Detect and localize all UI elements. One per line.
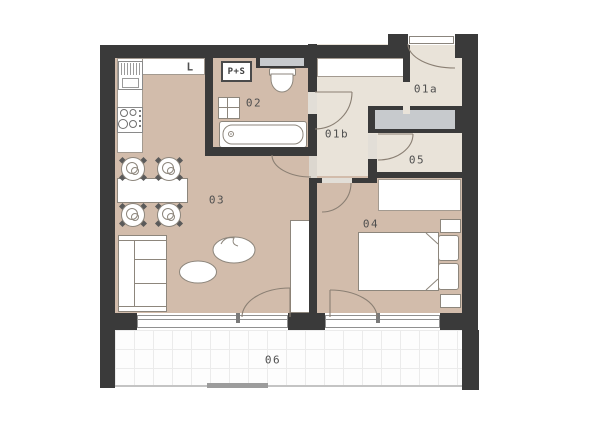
- pillow-bottom: [438, 263, 459, 290]
- sofa-armrest-bottom: [118, 306, 167, 307]
- wall-pier-middle: [288, 313, 325, 330]
- sofa-seat-line1: [134, 259, 167, 260]
- wall-01b-bottom-left: [313, 178, 322, 183]
- room-label-01a: 01a: [414, 83, 438, 96]
- wall-bath-right-upper: [308, 44, 317, 92]
- sofa-armrest-top: [118, 240, 167, 241]
- opening-01b-04: [322, 178, 352, 183]
- shaft-entry-inner: [375, 110, 455, 129]
- washbasin-cross-v: [227, 97, 228, 119]
- wall-pier-left: [100, 313, 137, 330]
- washer-dryer-box: P+S: [221, 61, 252, 82]
- wall-kitchen-bath: [205, 45, 213, 156]
- pillow-top: [438, 235, 459, 261]
- wall-right: [462, 34, 478, 330]
- wall-pier-right: [440, 313, 478, 330]
- wall-05-bottom: [372, 172, 462, 178]
- room-label-03: 03: [209, 194, 225, 207]
- room-label-01b: 01b: [325, 128, 349, 141]
- shaft-bathroom-inner: [260, 58, 304, 66]
- wall-left-stub: [100, 330, 115, 388]
- room-label-05: 05: [409, 154, 425, 167]
- wardrobe-01b: [317, 58, 405, 77]
- opening-05-door: [368, 134, 377, 159]
- wardrobe-04: [378, 179, 461, 211]
- wall-left: [100, 45, 115, 330]
- sideboard: [290, 220, 310, 313]
- window-living-glassline: [137, 319, 288, 320]
- kitchen-label: L: [186, 61, 193, 74]
- opening-01a-01b: [403, 82, 410, 114]
- balcony-railing-segment: [207, 383, 268, 388]
- wall-right-stub: [462, 330, 479, 390]
- window-living: [137, 315, 288, 328]
- nightstand-top: [440, 219, 461, 233]
- window-bedroom-glassline: [325, 319, 440, 320]
- opening-bathroom-door: [308, 92, 317, 114]
- room-label-06: 06: [265, 354, 281, 367]
- sofa-backrest: [134, 240, 135, 307]
- wall-03-04: [309, 178, 317, 313]
- nightstand-bottom: [440, 294, 461, 308]
- window-bedroom: [325, 315, 440, 328]
- washbasin-cross-h: [218, 107, 240, 108]
- wall-bath-bottom: [205, 147, 317, 156]
- floor-plan: P+S: [0, 0, 600, 443]
- dining-table: [117, 178, 188, 203]
- window-bedroom-mullion: [376, 313, 380, 323]
- room-label-04: 04: [363, 218, 379, 231]
- wall-01b-bottom-right: [352, 178, 377, 183]
- wall-top: [100, 45, 403, 58]
- floor-storage-05: [373, 129, 464, 176]
- sofa: [118, 235, 167, 312]
- wall-01a-left: [403, 44, 410, 82]
- bathtub: [219, 121, 307, 148]
- fridge-inner: [122, 78, 139, 88]
- sofa-seat-line2: [134, 283, 167, 284]
- washer-dryer-label: P+S: [228, 67, 246, 77]
- opening-01b-03: [309, 156, 317, 178]
- entry-door-leaf: [409, 36, 454, 44]
- room-label-02: 02: [246, 97, 262, 110]
- window-living-mullion: [236, 313, 240, 323]
- fridge-vents: [121, 63, 140, 75]
- balcony-railing: [113, 385, 464, 387]
- bed-mattress: [358, 232, 439, 291]
- washbasin: [218, 97, 240, 119]
- stove: [117, 107, 143, 133]
- wall-bath-right-lower: [308, 114, 317, 150]
- toilet-tank: [269, 68, 296, 76]
- balcony-tiles: [115, 330, 462, 385]
